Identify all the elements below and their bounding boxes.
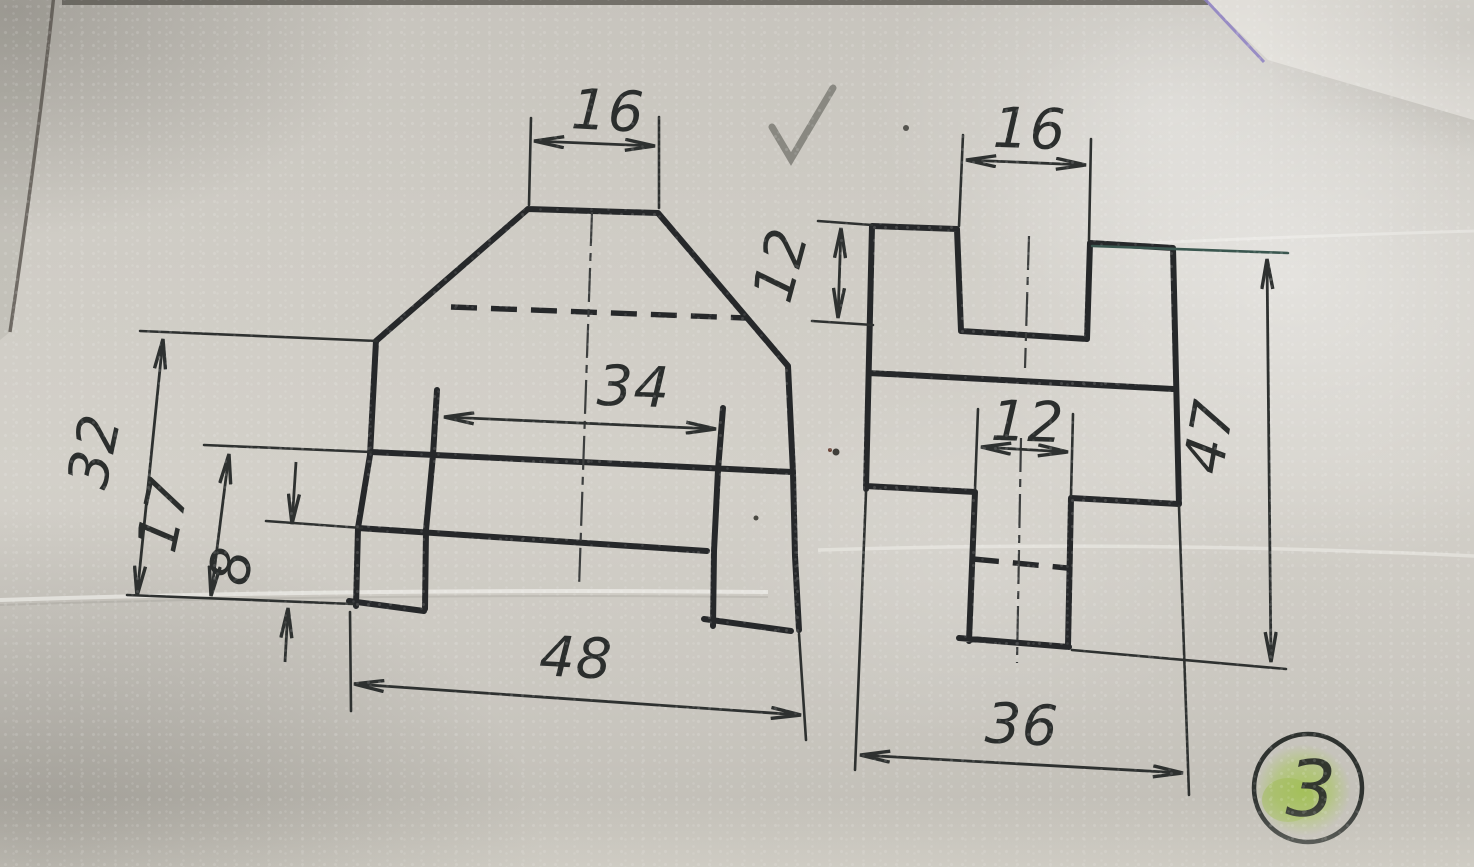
page-edge-artifacts <box>0 0 1474 340</box>
task-number: 3 <box>1285 744 1338 836</box>
dimension-value: 16 <box>570 77 647 146</box>
extension-line-bottom <box>1072 650 1286 669</box>
dimension-arrow-lower <box>285 608 288 662</box>
front-view: 16 34 48 32 17 <box>55 77 806 740</box>
side-hidden-edge <box>973 559 1067 568</box>
dimension-line <box>444 417 716 429</box>
pencil-speck <box>903 125 909 131</box>
front-hidden-edge <box>451 307 746 318</box>
dimension-value: 17 <box>124 473 203 558</box>
dimension-value: 12 <box>990 389 1065 457</box>
paper-crease <box>1150 231 1474 243</box>
dimension-arrow-upper <box>292 462 296 524</box>
photographed-drawing-sheet: 16 34 48 32 17 <box>0 0 1474 867</box>
dimension-front-base-notch-height: 8 <box>196 462 362 662</box>
dimension-line <box>838 228 841 318</box>
page-top-edge-line <box>62 0 1208 5</box>
dimension-value: 36 <box>984 691 1061 760</box>
dimension-line <box>137 339 163 596</box>
page-left-shadow <box>0 0 54 340</box>
dimension-value: 32 <box>55 409 134 494</box>
technical-drawing: 16 34 48 32 17 <box>0 0 1474 867</box>
extension-lines <box>266 521 362 528</box>
side-view: 16 12 12 47 36 <box>740 96 1288 795</box>
ink-speck <box>828 448 832 452</box>
extension-lines <box>812 221 873 325</box>
dimension-value: 16 <box>992 96 1067 164</box>
dimension-value: 47 <box>1171 395 1248 478</box>
dimension-side-stem-width: 12 <box>975 389 1073 496</box>
dimension-value: 48 <box>538 624 615 693</box>
paper-crease <box>818 546 1474 556</box>
dimension-value: 34 <box>596 354 671 422</box>
ink-speck <box>754 516 759 521</box>
dimension-value: 12 <box>740 221 822 309</box>
dimension-line <box>1267 259 1271 662</box>
front-view-outline <box>349 209 799 631</box>
page-corner-highlight <box>1206 0 1474 120</box>
dimension-front-top-width: 16 <box>529 77 659 208</box>
checkmark-icon <box>772 88 833 159</box>
dimension-side-top-width: 16 <box>959 96 1091 240</box>
ink-speck <box>833 449 840 456</box>
task-number-badge: 3 <box>1254 734 1362 842</box>
dimension-front-inner-width: 34 <box>444 354 716 429</box>
front-centerline <box>579 212 592 588</box>
extension-line-top <box>1092 246 1288 253</box>
dimension-side-groove-depth: 12 <box>740 221 873 325</box>
dimension-front-overall-width: 48 <box>350 612 806 740</box>
dimension-value: 8 <box>196 541 267 590</box>
extension-lines <box>204 445 371 452</box>
dimension-side-overall-height: 47 <box>1072 246 1288 669</box>
